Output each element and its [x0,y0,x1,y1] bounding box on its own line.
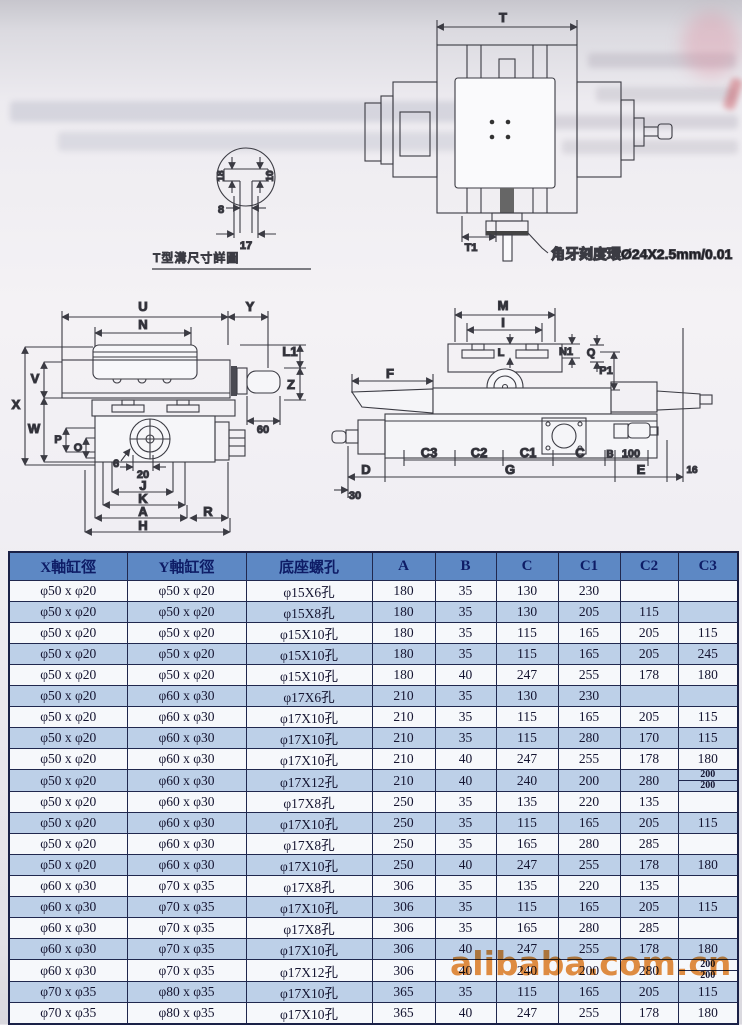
table-cell: φ60 x φ30 [127,728,246,749]
table-cell: 250 [372,834,435,855]
table-cell: 130 [496,581,558,602]
table-row: φ50 x φ20φ60 x φ30φ17X8孔25035165280285 [9,834,738,855]
dial-ring-annotation: 角牙刻度環Ø24X2.5mm/0.01 [551,246,733,262]
dim-label-n1: N1 [559,346,573,358]
table-cell: 240 [496,770,558,792]
table-cell: φ17X10孔 [246,813,372,834]
table-cell: 247 [496,855,558,876]
table-cell: 135 [496,876,558,897]
table-cell: 306 [372,918,435,939]
table-cell: 115 [496,982,558,1003]
table-cell [620,581,678,602]
table-cell: φ50 x φ20 [9,707,127,728]
table-cell: 220 [558,876,620,897]
table-cell: φ17X8孔 [246,918,372,939]
dim-label-60: 60 [257,424,269,436]
dim-label-10: 10 [265,170,276,182]
table-cell: 130 [496,686,558,707]
table-row: φ50 x φ20φ50 x φ20φ15X8孔18035130205115 [9,602,738,623]
table-cell: 205 [620,707,678,728]
table-cell: φ15X10孔 [246,644,372,665]
table-cell: φ50 x φ20 [9,834,127,855]
table-cell: 115 [496,623,558,644]
table-cell: 280 [620,770,678,792]
table-cell: 180 [372,581,435,602]
table-cell: 180 [372,644,435,665]
dim-label-c: C [575,445,585,460]
dim-label-n: N [138,317,147,332]
table-cell: φ50 x φ20 [9,665,127,686]
table-cell: 115 [496,707,558,728]
table-cell: 247 [496,665,558,686]
column-header: B [435,552,496,581]
table-row: φ60 x φ30φ70 x φ35φ17X12孔306402402002802… [9,960,738,982]
dim-label-l1: L1 [282,344,297,359]
table-cell: φ50 x φ20 [9,770,127,792]
table-cell: 40 [435,749,496,770]
table-row: φ50 x φ20φ50 x φ20φ15X10孔180351151652052… [9,644,738,665]
table-cell: 115 [678,728,738,749]
table-cell: 306 [372,876,435,897]
table-row: φ60 x φ30φ70 x φ35φ17X10孔306402472551781… [9,939,738,960]
dim-label-u: U [138,299,147,314]
table-cell: φ70 x φ35 [127,876,246,897]
table-cell: 40 [435,855,496,876]
table-cell: φ60 x φ30 [127,749,246,770]
table-row: φ50 x φ20φ60 x φ30φ17X8孔25035135220135 [9,792,738,813]
table-cell: 200200 [678,770,738,792]
table-cell: φ50 x φ20 [9,728,127,749]
table-cell: 180 [678,939,738,960]
table-cell: 165 [558,644,620,665]
table-cell: φ17X8孔 [246,834,372,855]
table-cell: φ70 x φ35 [127,897,246,918]
table-cell: 178 [620,1003,678,1025]
table-cell: 247 [496,939,558,960]
table-cell: 365 [372,982,435,1003]
dim-label-z: Z [287,377,295,392]
table-cell: φ50 x φ20 [9,749,127,770]
dim-label-a: A [138,504,148,519]
table-cell: φ17X10孔 [246,728,372,749]
spec-table: X軸缸徑Y軸缸徑底座螺孔ABCC1C2C3 φ50 x φ20φ50 x φ20… [8,551,737,1025]
table-cell: 40 [435,1003,496,1025]
table-cell: 178 [620,939,678,960]
dim-label-w: W [28,421,41,436]
table-cell: 285 [620,834,678,855]
table-cell: 200 [558,770,620,792]
dim-label-18: 18 [216,170,227,182]
table-cell: 115 [678,813,738,834]
table-cell: 210 [372,749,435,770]
table-cell: φ60 x φ30 [127,770,246,792]
dim-label-6: 6 [113,458,119,470]
table-row: φ50 x φ20φ50 x φ20φ15X6孔18035130230 [9,581,738,602]
table-cell: φ60 x φ30 [127,707,246,728]
table-cell [678,686,738,707]
table-cell: 200200 [678,960,738,982]
table-cell: φ60 x φ30 [9,960,127,982]
table-cell: 247 [496,1003,558,1025]
column-header: 底座螺孔 [246,552,372,581]
table-cell: φ17X12孔 [246,960,372,982]
dim-label-16: 16 [686,465,698,476]
dim-label-c2: C2 [471,445,488,460]
table-cell: φ15X8孔 [246,602,372,623]
table-cell: 180 [678,1003,738,1025]
dim-label-d: D [361,462,370,477]
table-cell: φ60 x φ30 [127,834,246,855]
table-row: φ50 x φ20φ60 x φ30φ17X12孔210402402002802… [9,770,738,792]
table-cell [678,834,738,855]
table-cell: 35 [435,602,496,623]
table-cell: 35 [435,834,496,855]
table-cell: 210 [372,707,435,728]
table-row: φ50 x φ20φ60 x φ30φ17X10孔250402472551781… [9,855,738,876]
table-cell: φ17X10孔 [246,939,372,960]
table-cell: 165 [496,834,558,855]
spec-table-header-row: X軸缸徑Y軸缸徑底座螺孔ABCC1C2C3 [9,552,738,581]
table-cell: 210 [372,728,435,749]
table-cell: φ50 x φ20 [9,855,127,876]
column-header: C3 [678,552,738,581]
table-cell: φ17X10孔 [246,855,372,876]
dim-label-t1: T1 [465,242,478,254]
table-cell: 178 [620,749,678,770]
table-cell: 165 [558,813,620,834]
table-cell: 205 [620,897,678,918]
dim-label-100: 100 [622,448,640,460]
catalog-page: T [0,0,742,1024]
table-cell: φ60 x φ30 [9,876,127,897]
table-cell: 35 [435,644,496,665]
table-cell: 306 [372,939,435,960]
table-cell: φ50 x φ20 [9,813,127,834]
dim-label-e: E [637,462,646,477]
table-cell: 165 [558,623,620,644]
table-cell: 205 [620,623,678,644]
table-cell: 35 [435,897,496,918]
table-cell: φ50 x φ20 [9,623,127,644]
table-cell: 230 [558,686,620,707]
table-cell: 130 [496,602,558,623]
table-cell: 178 [620,855,678,876]
column-header: X軸缸徑 [9,552,127,581]
table-cell: 255 [558,665,620,686]
table-cell: 40 [435,939,496,960]
table-cell: 180 [678,855,738,876]
table-cell: 255 [558,855,620,876]
table-cell: 35 [435,813,496,834]
table-cell: 135 [620,792,678,813]
table-cell: φ70 x φ35 [127,939,246,960]
table-cell: 178 [620,665,678,686]
dim-label-p: P [54,434,61,446]
table-cell: 210 [372,770,435,792]
table-cell: φ17X6孔 [246,686,372,707]
t-slot-detail-title: T型溝尺寸詳圖 [153,250,239,265]
table-cell: φ15X10孔 [246,623,372,644]
table-cell: 280 [558,834,620,855]
table-cell: φ60 x φ30 [127,813,246,834]
table-cell: φ50 x φ20 [9,581,127,602]
dim-label-f: F [386,366,394,381]
table-cell: 205 [620,813,678,834]
table-cell: 115 [620,602,678,623]
table-cell: 180 [678,665,738,686]
table-cell: φ50 x φ20 [127,602,246,623]
dim-label-q: Q [587,347,596,359]
table-row: φ70 x φ35φ80 x φ35φ17X10孔365402472551781… [9,1003,738,1025]
table-row: φ50 x φ20φ60 x φ30φ17X10孔210351151652051… [9,707,738,728]
dim-label-8: 8 [218,204,224,216]
table-cell: 115 [496,897,558,918]
table-cell [678,918,738,939]
table-cell: φ50 x φ20 [127,623,246,644]
table-cell: 165 [496,918,558,939]
table-cell: φ60 x φ30 [127,855,246,876]
table-cell: φ80 x φ35 [127,1003,246,1025]
table-cell: 220 [558,792,620,813]
table-cell: 180 [678,749,738,770]
table-cell: φ50 x φ20 [9,602,127,623]
table-cell: 115 [678,982,738,1003]
table-cell: φ70 x φ35 [9,982,127,1003]
table-cell: 240 [496,960,558,982]
dim-label-x: X [12,397,21,412]
dim-label-l: L [498,347,505,359]
table-cell: 135 [620,876,678,897]
dim-label-p1: P1 [599,365,612,377]
engineering-drawings: T [0,0,742,550]
table-cell: 280 [558,918,620,939]
dim-label-g: G [505,462,515,477]
column-header: Y軸缸徑 [127,552,246,581]
table-cell: φ17X10孔 [246,982,372,1003]
table-cell: 35 [435,876,496,897]
table-cell: φ80 x φ35 [127,982,246,1003]
table-cell: 115 [496,644,558,665]
table-cell: 250 [372,792,435,813]
dim-label-30: 30 [349,490,361,502]
table-cell: φ50 x φ20 [9,792,127,813]
table-cell: φ70 x φ35 [9,1003,127,1025]
dim-label-i: I [501,315,505,330]
table-cell: 245 [678,644,738,665]
table-row: φ50 x φ20φ60 x φ30φ17X10孔250351151652051… [9,813,738,834]
table-cell: 365 [372,1003,435,1025]
table-cell: 255 [558,939,620,960]
spec-table-body: φ50 x φ20φ50 x φ20φ15X6孔18035130230φ50 x… [9,581,738,1025]
front-view-diagram: U Y N 60 L1 Z [12,299,306,533]
table-cell: 115 [678,897,738,918]
table-cell: φ17X10孔 [246,749,372,770]
table-cell: φ50 x φ20 [9,644,127,665]
dim-label-y: Y [246,299,255,314]
column-header: C1 [558,552,620,581]
dim-label-v: V [31,371,40,386]
table-cell: 285 [620,918,678,939]
dim-label-17: 17 [240,240,252,252]
table-cell: 35 [435,728,496,749]
table-cell: 135 [496,792,558,813]
side-view-diagram: M I L N1 Q P1 F [332,298,712,502]
table-row: φ50 x φ20φ60 x φ30φ17X10孔210351152801701… [9,728,738,749]
table-row: φ50 x φ20φ50 x φ20φ15X10孔180402472551781… [9,665,738,686]
table-cell: 170 [620,728,678,749]
table-cell: φ50 x φ20 [127,581,246,602]
table-row: φ60 x φ30φ70 x φ35φ17X8孔30635165280285 [9,918,738,939]
table-cell: φ50 x φ20 [127,665,246,686]
table-cell: 250 [372,855,435,876]
table-row: φ60 x φ30φ70 x φ35φ17X8孔30635135220135 [9,876,738,897]
dim-label-o: O [74,442,83,454]
table-cell: φ60 x φ30 [127,686,246,707]
table-cell: φ17X10孔 [246,897,372,918]
top-view-diagram: T [365,10,733,262]
dim-label-c3: C3 [421,445,438,460]
table-row: φ70 x φ35φ80 x φ35φ17X10孔365351151652051… [9,982,738,1003]
table-cell: φ15X6孔 [246,581,372,602]
table-cell: φ60 x φ30 [9,939,127,960]
column-header: A [372,552,435,581]
table-cell [678,792,738,813]
column-header: C2 [620,552,678,581]
table-row: φ50 x φ20φ50 x φ20φ15X10孔180351151652051… [9,623,738,644]
table-row: φ60 x φ30φ70 x φ35φ17X10孔306351151652051… [9,897,738,918]
table-cell: φ60 x φ30 [127,792,246,813]
table-cell: 40 [435,960,496,982]
table-cell: φ60 x φ30 [9,918,127,939]
table-cell: 230 [558,581,620,602]
table-cell [620,686,678,707]
table-cell: 165 [558,982,620,1003]
table-cell: 40 [435,770,496,792]
table-cell: 35 [435,707,496,728]
table-row: φ50 x φ20φ60 x φ30φ17X10孔210402472551781… [9,749,738,770]
table-cell: 115 [496,813,558,834]
table-cell: 200 [558,960,620,982]
table-cell: 205 [620,982,678,1003]
dim-label-h: H [138,518,147,533]
table-cell: φ17X12孔 [246,770,372,792]
table-cell: 255 [558,1003,620,1025]
table-cell: 35 [435,792,496,813]
t-slot-detail-diagram: 18 10 8 17 T型溝尺寸詳圖 [152,148,311,269]
table-cell: 35 [435,581,496,602]
table-cell: φ17X8孔 [246,792,372,813]
table-cell: 180 [372,623,435,644]
table-cell: 40 [435,665,496,686]
table-cell: φ17X8孔 [246,876,372,897]
table-cell [678,602,738,623]
table-cell: 115 [678,623,738,644]
table-cell: φ50 x φ20 [127,644,246,665]
dim-label-r: R [203,504,213,519]
table-cell: 35 [435,982,496,1003]
table-cell: 306 [372,897,435,918]
dim-label-m: M [498,298,509,313]
table-cell [678,876,738,897]
table-cell: φ50 x φ20 [9,686,127,707]
table-cell: 205 [558,602,620,623]
table-cell: φ70 x φ35 [127,918,246,939]
table-cell: 115 [496,728,558,749]
table-cell: 165 [558,707,620,728]
table-cell: φ17X10孔 [246,707,372,728]
table-cell: 280 [620,960,678,982]
table-cell: φ17X10孔 [246,1003,372,1025]
table-cell: 115 [678,707,738,728]
table-cell: 35 [435,686,496,707]
dim-label-t: T [499,10,507,25]
table-cell: 306 [372,960,435,982]
table-cell: 205 [620,644,678,665]
table-cell: 255 [558,749,620,770]
table-cell: 35 [435,918,496,939]
table-cell: 247 [496,749,558,770]
table-cell: φ70 x φ35 [127,960,246,982]
table-cell: 280 [558,728,620,749]
table-cell: 250 [372,813,435,834]
table-cell: 210 [372,686,435,707]
table-row: φ50 x φ20φ60 x φ30φ17X6孔21035130230 [9,686,738,707]
column-header: C [496,552,558,581]
table-cell [678,581,738,602]
table-cell: 35 [435,623,496,644]
table-cell: φ15X10孔 [246,665,372,686]
table-cell: 180 [372,602,435,623]
dim-label-c1: C1 [520,445,537,460]
table-cell: 180 [372,665,435,686]
dim-label-b: B [606,449,613,460]
table-cell: 165 [558,897,620,918]
table-cell: φ60 x φ30 [9,897,127,918]
